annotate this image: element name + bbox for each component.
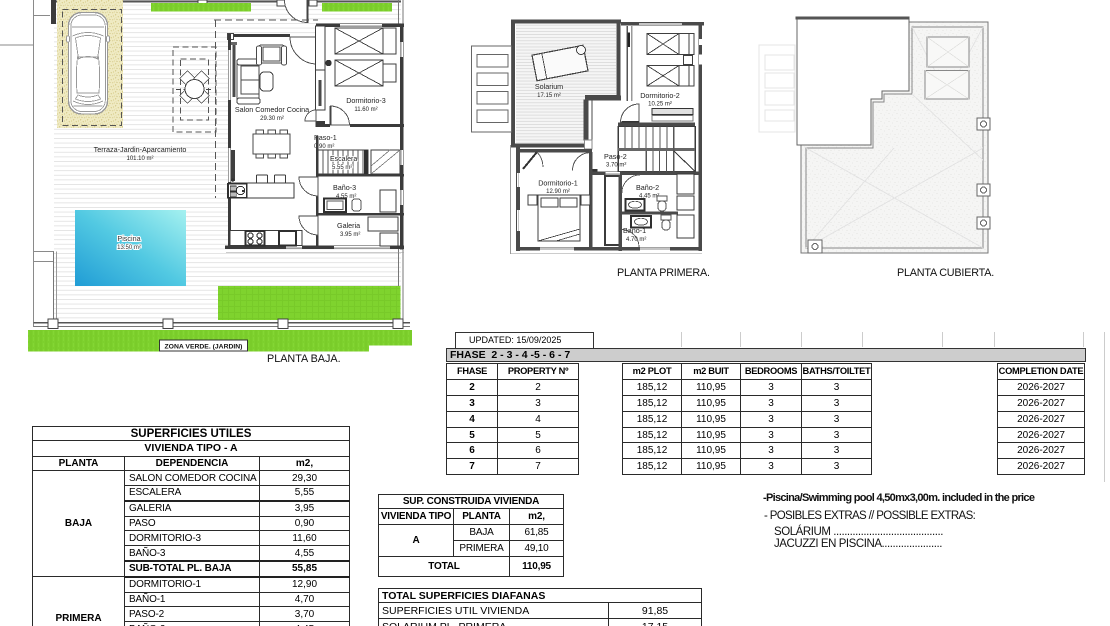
svg-text:Solarium: Solarium	[535, 82, 563, 91]
svg-text:10.25 m²: 10.25 m²	[648, 102, 672, 108]
svg-text:Dormitorio-3: Dormitorio-3	[346, 96, 386, 105]
svg-text:Escalera: Escalera	[330, 156, 357, 163]
svg-text:Salon Comedor Cocina: Salon Comedor Cocina	[235, 105, 309, 114]
svg-text:Baño-3: Baño-3	[333, 183, 356, 192]
svg-text:4.70 m²: 4.70 m²	[626, 237, 646, 243]
svg-text:Terraza-Jardin-Aparcamiento: Terraza-Jardin-Aparcamiento	[94, 145, 187, 154]
svg-text:5.55 m²: 5.55 m²	[332, 165, 352, 171]
svg-text:Dormitorio-1: Dormitorio-1	[538, 179, 578, 188]
svg-text:Paso-2: Paso-2	[604, 152, 627, 161]
svg-text:ZONA VERDE. (JARDIN): ZONA VERDE. (JARDIN)	[165, 343, 243, 350]
svg-text:PLANTA CUBIERTA.: PLANTA CUBIERTA.	[897, 267, 994, 279]
svg-text:4.55 m²: 4.55 m²	[336, 194, 356, 200]
svg-text:11.60 m²: 11.60 m²	[354, 107, 377, 113]
svg-text:101.10 m²: 101.10 m²	[126, 156, 153, 162]
svg-text:29.30 m²: 29.30 m²	[260, 116, 284, 122]
svg-text:13.50 m²: 13.50 m²	[117, 245, 141, 251]
svg-text:PLANTA PRIMERA.: PLANTA PRIMERA.	[617, 267, 710, 279]
svg-text:Baño-2: Baño-2	[636, 183, 659, 192]
svg-text:Galeria: Galeria	[337, 221, 360, 230]
svg-text:3.70 m²: 3.70 m²	[606, 163, 626, 169]
svg-text:3.95 m²: 3.95 m²	[340, 232, 360, 238]
svg-text:Dormitorio-2: Dormitorio-2	[640, 91, 680, 100]
svg-text:Piscina: Piscina	[117, 234, 140, 243]
svg-text:17.15 m²: 17.15 m²	[537, 93, 561, 99]
svg-text:12.90 m²: 12.90 m²	[546, 189, 570, 195]
svg-text:PLANTA BAJA.: PLANTA BAJA.	[267, 353, 341, 365]
svg-text:Baño-1: Baño-1	[623, 226, 646, 235]
svg-text:4.45 m²: 4.45 m²	[639, 194, 659, 200]
